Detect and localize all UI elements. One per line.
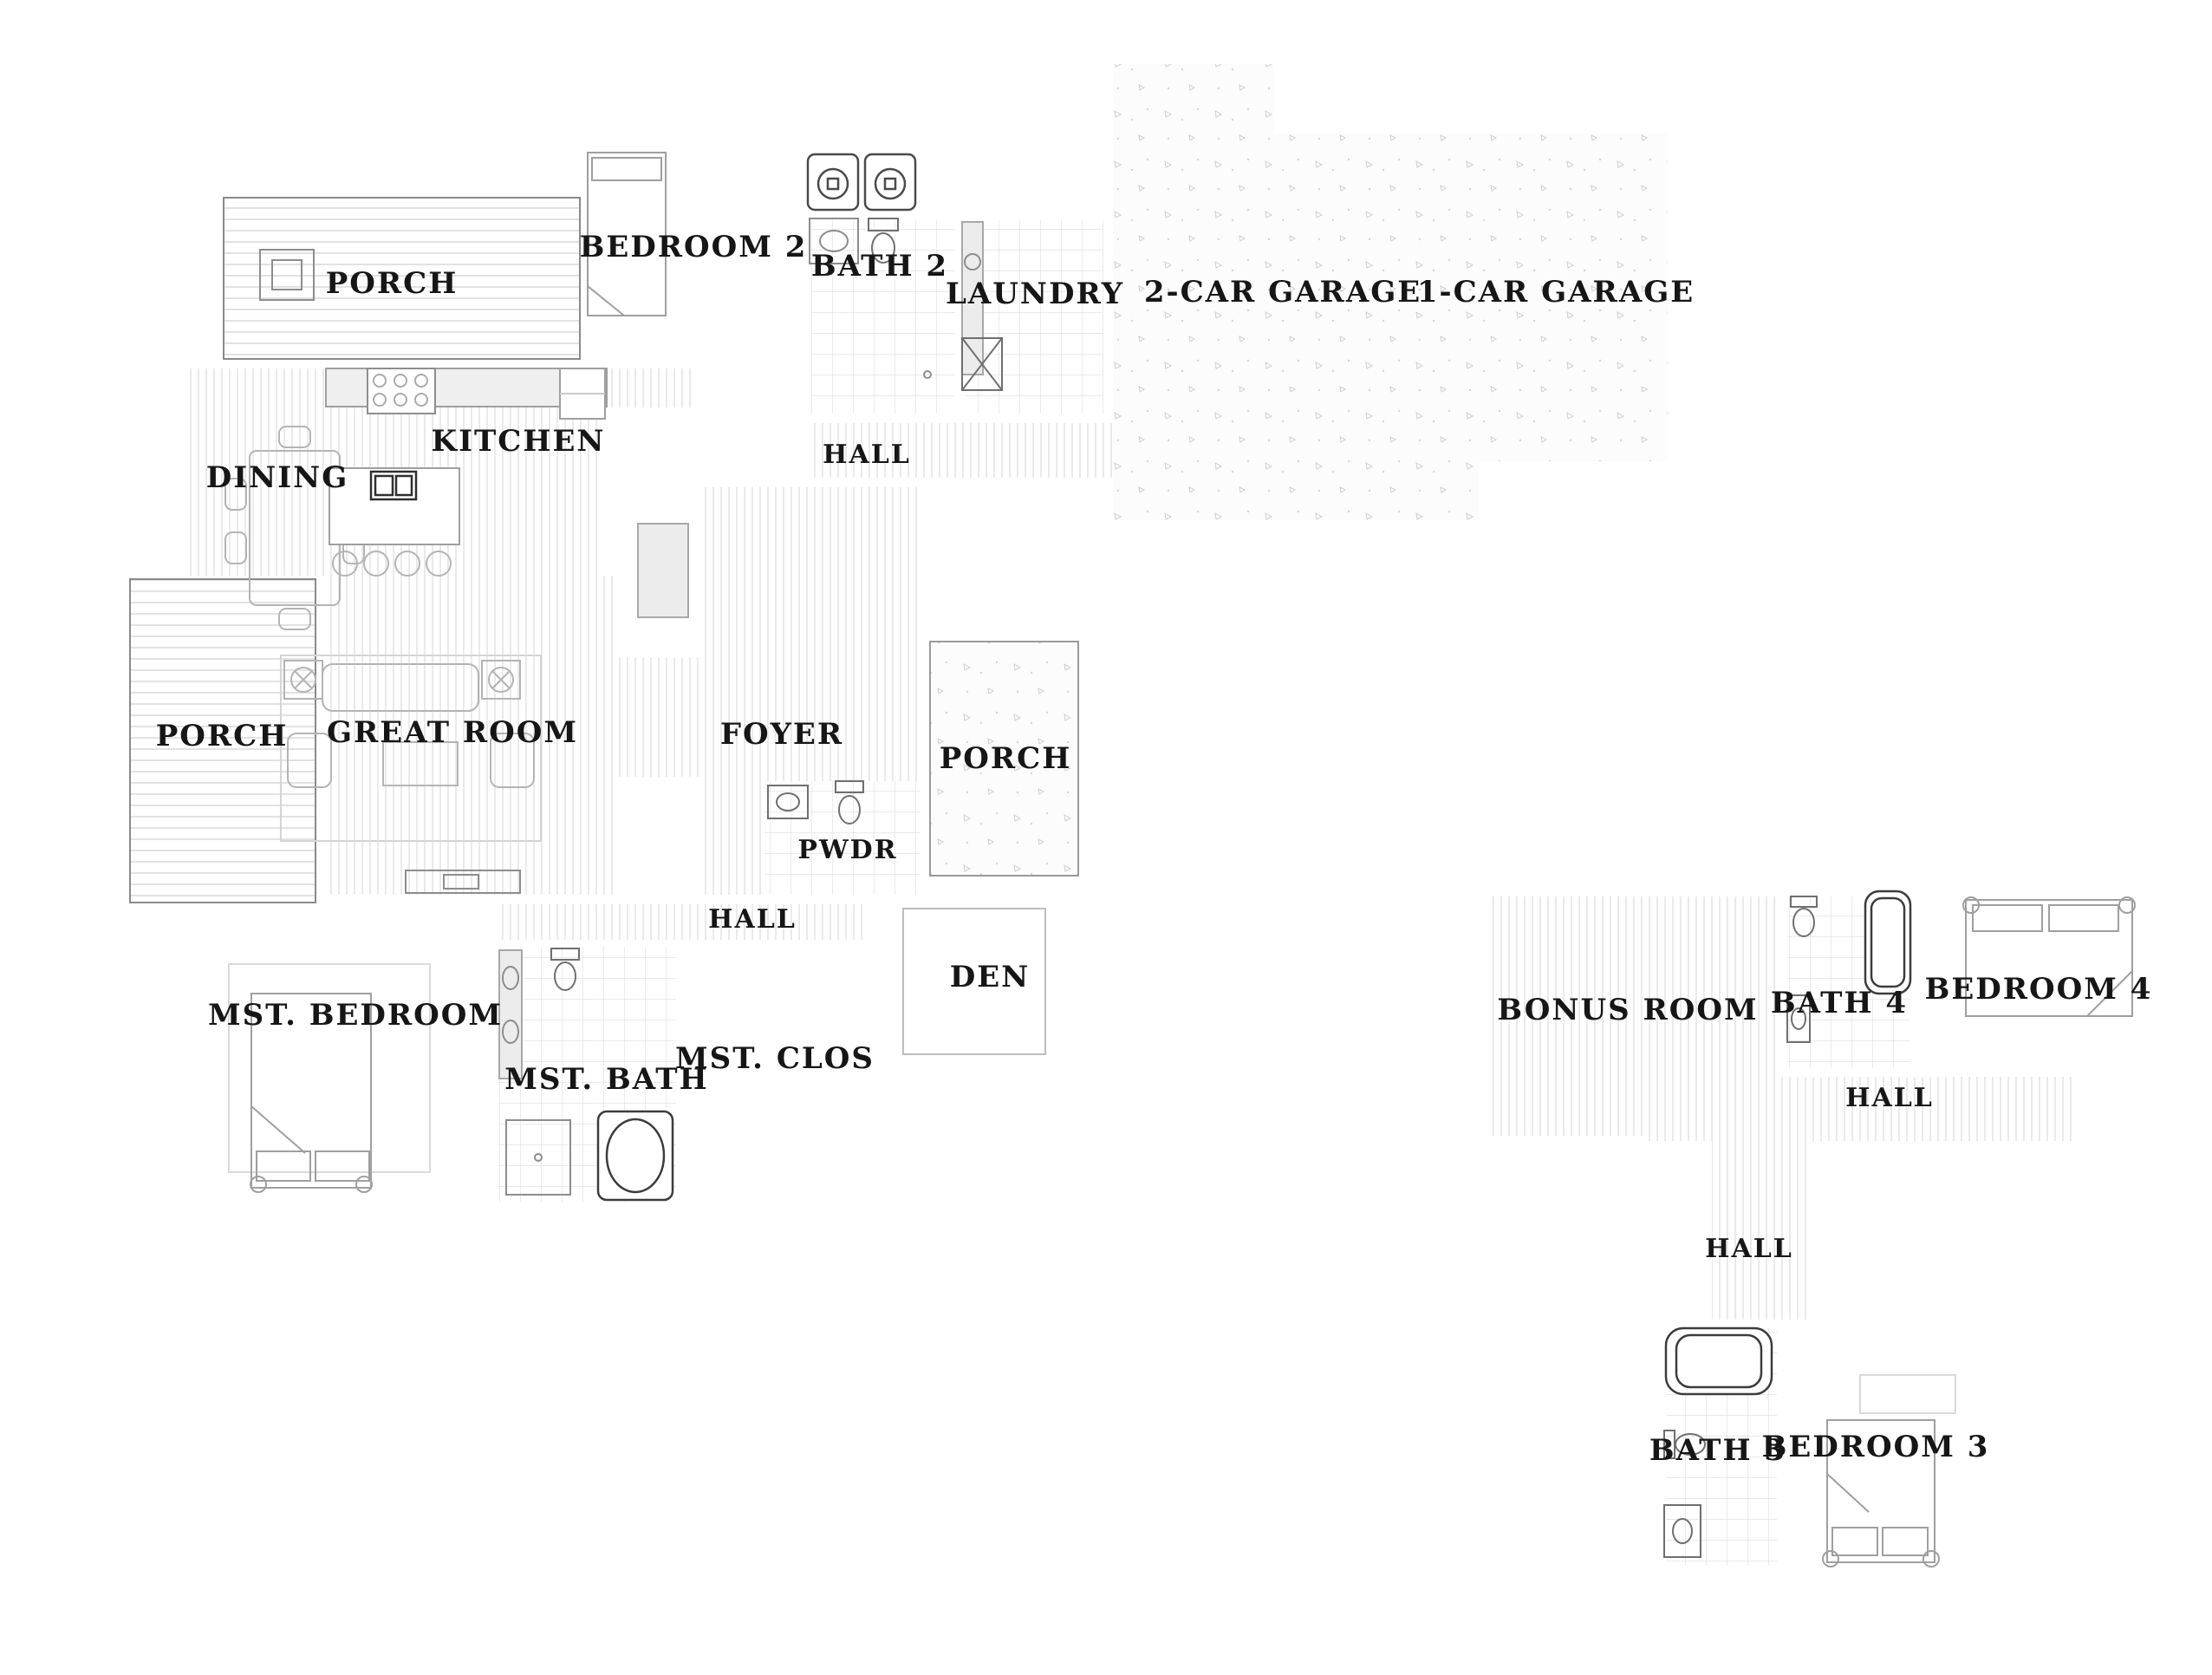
room-label-dining: DINING [206,460,349,495]
bathtub-icon [1666,1328,1772,1394]
washer-icon [808,154,858,210]
bathtub-icon [1865,891,1910,994]
room-label-den: DEN [950,960,1030,994]
room-label-hall-floor2: HALL [1845,1083,1934,1113]
room-label-garage1: 1-CAR GARAGE [1417,275,1695,310]
kitchen-sink-icon [371,472,416,499]
room-label-bath2: BATH 2 [811,249,948,284]
room-label-garage2: 2-CAR GARAGE [1144,275,1422,310]
floor-plan-page: PORCH BEDROOM 2 BATH 2 LAUNDRY 2-CAR GAR… [0,0,2212,1675]
room-label-mst-bedroom: MST. BEDROOM [208,998,503,1033]
room-label-great-room: GREAT ROOM [327,715,578,750]
room-label-pwdr: PWDR [797,835,897,865]
range-icon [368,368,435,414]
room-label-bedroom4: BEDROOM 4 [1925,972,2153,1007]
floor-plan-canvas: PORCH BEDROOM 2 BATH 2 LAUNDRY 2-CAR GAR… [0,0,2212,1675]
room-label-foyer: FOYER [720,717,843,752]
room-label-bonus-room: BONUS ROOM [1497,993,1758,1027]
kitchen-pass-floor [602,368,693,407]
bed-icon [1823,1375,1955,1567]
room-label-hall-main: HALL [708,904,797,935]
room-label-porch-front: PORCH [940,741,1072,776]
room-label-hall-upper: HALL [823,440,911,470]
bathtub-icon [598,1111,673,1200]
room-label-mst-clos: MST. CLOS [675,1041,875,1076]
room-label-bath4: BATH 4 [1771,986,1908,1020]
dryer-icon [865,154,915,210]
room-label-porch-left: PORCH [156,719,289,753]
room-label-hall-stairs2: HALL [1705,1234,1793,1264]
room-label-bedroom3: BEDROOM 3 [1762,1430,1990,1464]
room-label-porch-upper: PORCH [326,266,459,301]
main-hall-floor [499,904,869,940]
room-label-kitchen: KITCHEN [432,424,606,459]
laundry-floor [965,220,1103,414]
room-label-laundry: LAUNDRY [946,277,1124,311]
room-label-bedroom2: BEDROOM 2 [580,230,808,264]
mudroom-bench [638,524,688,617]
hall2-vert-floor [1712,1141,1807,1320]
foyer-side-floor [608,657,700,777]
